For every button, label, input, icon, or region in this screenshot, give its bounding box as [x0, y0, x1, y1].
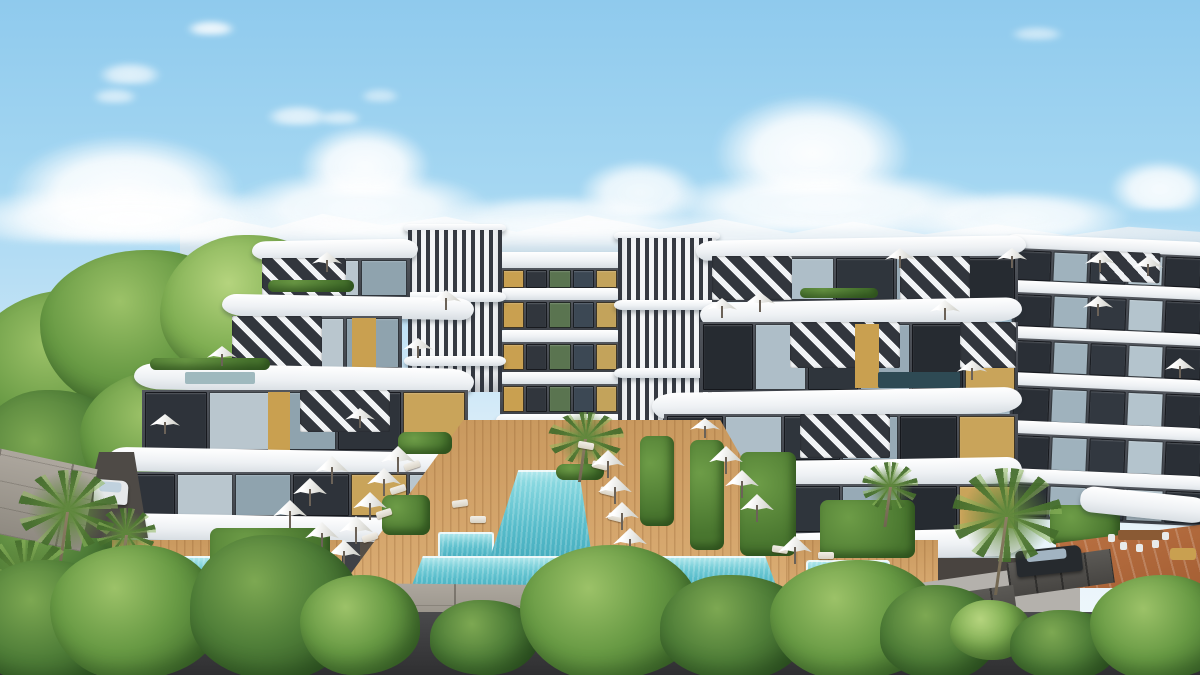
center-building-floor: [500, 342, 620, 372]
dining-chair: [1152, 540, 1159, 548]
sun-lounger: [818, 552, 834, 559]
window-pane: [549, 344, 570, 370]
balcony-umbrella: [707, 298, 737, 318]
window-pane: [573, 344, 594, 370]
balcony-umbrella: [745, 292, 775, 312]
foreground-tree: [1090, 575, 1200, 675]
left-building-gold-niche: [268, 392, 290, 450]
window-pane: [596, 270, 617, 288]
dining-chair: [1136, 544, 1143, 552]
window-pane: [959, 416, 1015, 460]
balcony-umbrella: [431, 290, 461, 310]
balcony-umbrella: [930, 300, 960, 320]
balcony-umbrella: [312, 252, 342, 272]
window-pane: [1050, 437, 1087, 473]
balcony-umbrella: [1085, 252, 1115, 272]
balcony-umbrella: [403, 338, 433, 358]
window-pane: [596, 386, 617, 412]
right-building-rooftop-pool: [878, 372, 960, 388]
dining-chair: [1108, 534, 1115, 542]
window-pane: [1090, 343, 1127, 377]
cloud-puff: [360, 88, 400, 102]
window-pane: [1164, 394, 1200, 430]
balcony-umbrella: [1133, 256, 1163, 276]
window-pane: [503, 386, 524, 412]
balcony-umbrella: [1165, 358, 1195, 378]
center-building-slab: [496, 330, 624, 342]
center-building-parapet: [494, 252, 626, 268]
window-pane: [1127, 345, 1164, 379]
window-pane: [573, 386, 594, 412]
cloud-puff: [318, 110, 362, 124]
window-pane: [573, 270, 594, 288]
right-building-stripe-panel: [790, 322, 900, 368]
window-pane: [549, 386, 570, 412]
window-pane: [1088, 390, 1125, 426]
palm-tree: [952, 468, 1062, 598]
center-building-floor: [500, 300, 620, 330]
window-pane: [703, 324, 753, 390]
window-pane: [1014, 340, 1051, 374]
sun-lounger: [470, 516, 486, 523]
balcony-umbrella: [150, 414, 180, 434]
center-building-floor: [500, 268, 620, 290]
balcony-umbrella: [345, 408, 375, 428]
window-pane: [900, 416, 956, 460]
foreground-tree: [300, 575, 420, 675]
window-pane: [573, 302, 594, 328]
left-building-terrace-pool: [185, 372, 255, 384]
window-pane: [1126, 440, 1163, 476]
window-pane: [503, 270, 524, 288]
window-pane: [361, 260, 407, 296]
window-pane: [1052, 342, 1089, 376]
window-pane: [1052, 252, 1089, 284]
walkway-hedge: [640, 436, 674, 526]
window-pane: [1088, 438, 1125, 474]
window-pane: [1165, 301, 1200, 335]
window-pane: [1164, 442, 1200, 478]
pool-umbrella: [598, 476, 632, 504]
window-pane: [503, 344, 524, 370]
window-pane: [596, 344, 617, 370]
garden-bench: [1170, 548, 1196, 560]
dining-chair: [1120, 542, 1127, 550]
left-building-gold-niche: [352, 318, 376, 368]
window-pane: [549, 270, 570, 288]
left-building-roof-hedge: [268, 280, 354, 292]
cloud-puff: [1010, 26, 1064, 40]
window-pane: [209, 392, 271, 450]
window-pane: [1165, 257, 1200, 289]
right-building-gold-niche: [855, 324, 879, 388]
window-pane: [526, 270, 547, 288]
balcony-umbrella: [1083, 296, 1113, 316]
pool-umbrella: [740, 494, 774, 522]
cloud-puff: [92, 88, 138, 103]
window-pane: [549, 302, 570, 328]
window-pane: [1126, 392, 1163, 428]
balcony-umbrella: [997, 248, 1027, 268]
right-building-stripe-panel: [800, 414, 890, 458]
cloud-puff: [186, 20, 236, 35]
center-building-slab: [496, 372, 624, 384]
architectural-render: [0, 0, 1200, 675]
dining-table: [1118, 530, 1164, 540]
pool-umbrella: [591, 450, 625, 478]
window-pane: [526, 344, 547, 370]
palm-tree: [862, 462, 918, 528]
balcony-umbrella: [957, 360, 987, 380]
pool-umbrella: [273, 500, 307, 528]
window-pane: [1127, 299, 1164, 333]
dining-chair: [1162, 532, 1169, 540]
center-building-floor: [500, 384, 620, 414]
window-pane: [503, 302, 524, 328]
balcony-umbrella: [207, 346, 237, 366]
window-pane: [1050, 389, 1087, 425]
cloud-puff: [98, 62, 162, 84]
window-pane: [177, 474, 233, 516]
cloud: [1110, 160, 1200, 210]
balcony-umbrella: [885, 248, 915, 268]
window-pane: [526, 302, 547, 328]
pool-umbrella: [605, 502, 639, 530]
window-pane: [526, 386, 547, 412]
pool-umbrella: [778, 536, 812, 564]
balcony-umbrella: [690, 418, 720, 438]
center-building-slab: [496, 288, 624, 300]
right-building-terrace-hedge: [800, 288, 878, 298]
